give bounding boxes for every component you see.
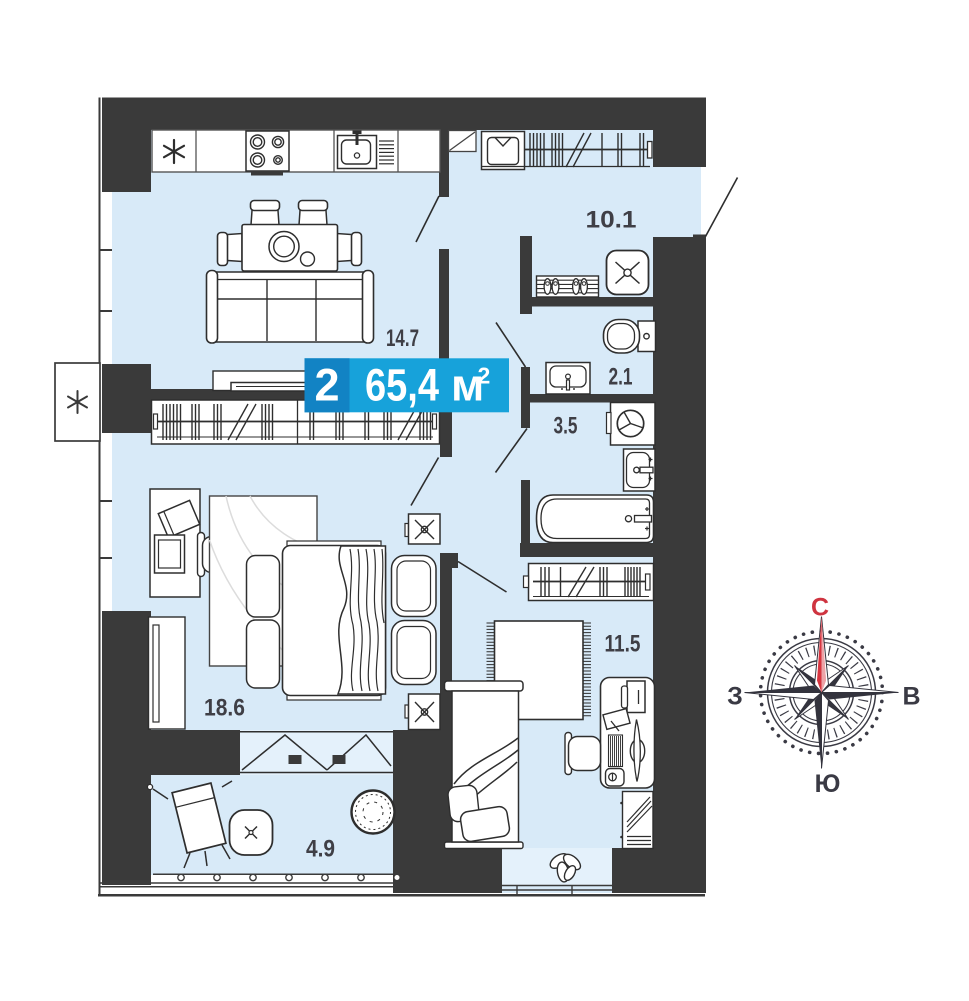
- svg-text:11.5: 11.5: [605, 631, 641, 658]
- svg-text:18.6: 18.6: [204, 695, 245, 722]
- svg-text:65,4: 65,4: [365, 360, 439, 411]
- svg-text:2.1: 2.1: [609, 364, 633, 391]
- svg-text:4.9: 4.9: [306, 836, 335, 863]
- svg-text:С: С: [811, 594, 829, 622]
- svg-text:В: В: [902, 683, 920, 711]
- svg-text:2: 2: [314, 360, 339, 411]
- svg-text:З: З: [727, 683, 743, 711]
- svg-text:14.7: 14.7: [386, 325, 419, 352]
- svg-text:2: 2: [478, 363, 491, 389]
- svg-text:3.5: 3.5: [554, 413, 578, 440]
- svg-text:Ю: Ю: [815, 770, 841, 798]
- svg-text:10.1: 10.1: [586, 207, 637, 234]
